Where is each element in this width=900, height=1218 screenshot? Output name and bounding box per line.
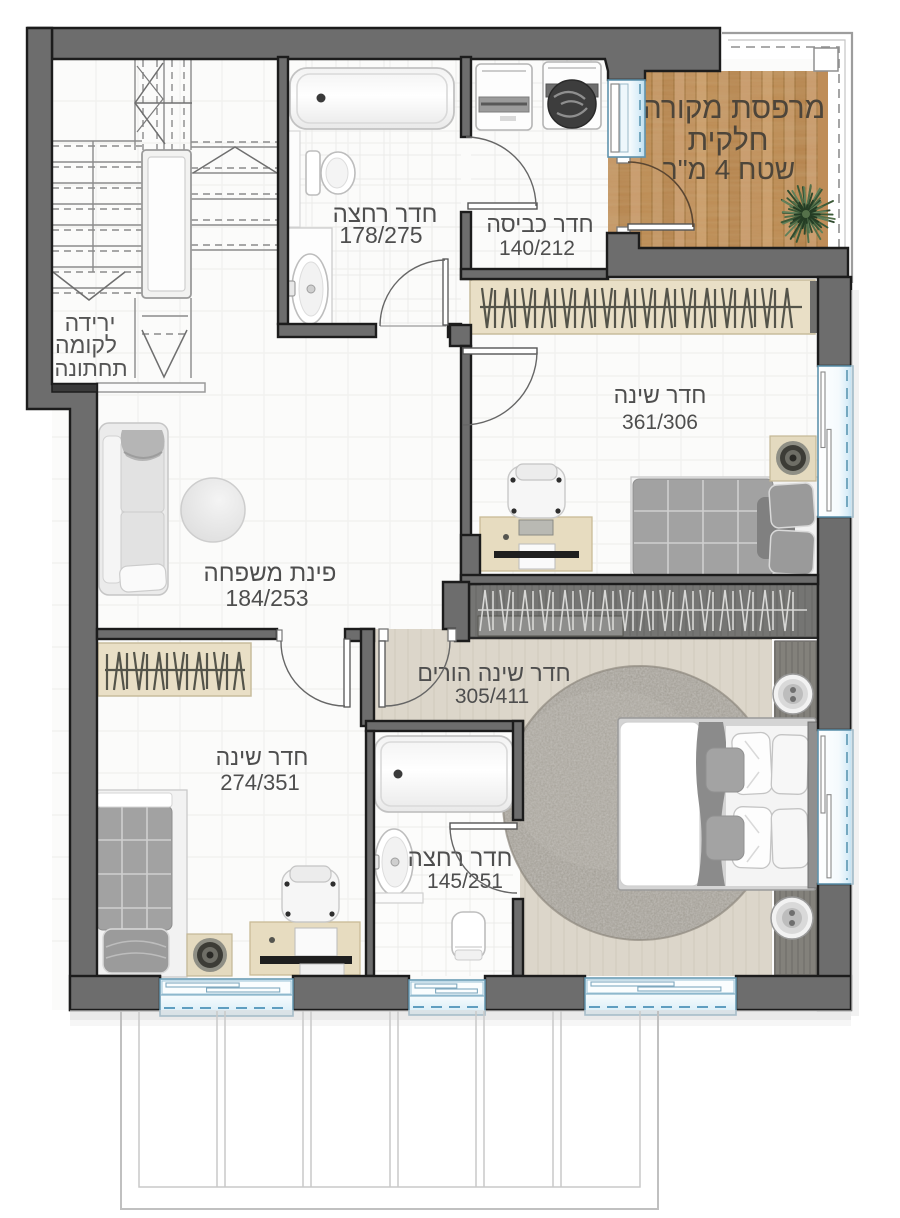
svg-text:274/351: 274/351 — [220, 770, 300, 795]
svg-text:חדר שינה: חדר שינה — [614, 382, 707, 408]
svg-text:שטח 4 מ"ר: שטח 4 מ"ר — [663, 154, 795, 185]
svg-text:184/253: 184/253 — [225, 585, 308, 611]
svg-text:חדר שינה: חדר שינה — [216, 744, 309, 770]
svg-text:חדר שינה הורים: חדר שינה הורים — [417, 660, 570, 686]
svg-text:חדר רחצה: חדר רחצה — [408, 845, 513, 872]
svg-text:מרפסת מקורה: מרפסת מקורה — [643, 92, 825, 125]
svg-text:145/251: 145/251 — [427, 870, 503, 893]
svg-text:פינת משפחה: פינת משפחה — [204, 560, 337, 587]
svg-text:תחתונה: תחתונה — [54, 356, 127, 381]
svg-text:361/306: 361/306 — [622, 411, 698, 434]
svg-text:חלקית: חלקית — [688, 124, 769, 157]
svg-text:חדר כביסה: חדר כביסה — [486, 211, 593, 237]
svg-text:140/212: 140/212 — [499, 237, 575, 260]
svg-text:לקומה: לקומה — [55, 332, 117, 358]
svg-text:178/275: 178/275 — [339, 222, 422, 248]
svg-text:305/411: 305/411 — [455, 685, 529, 708]
